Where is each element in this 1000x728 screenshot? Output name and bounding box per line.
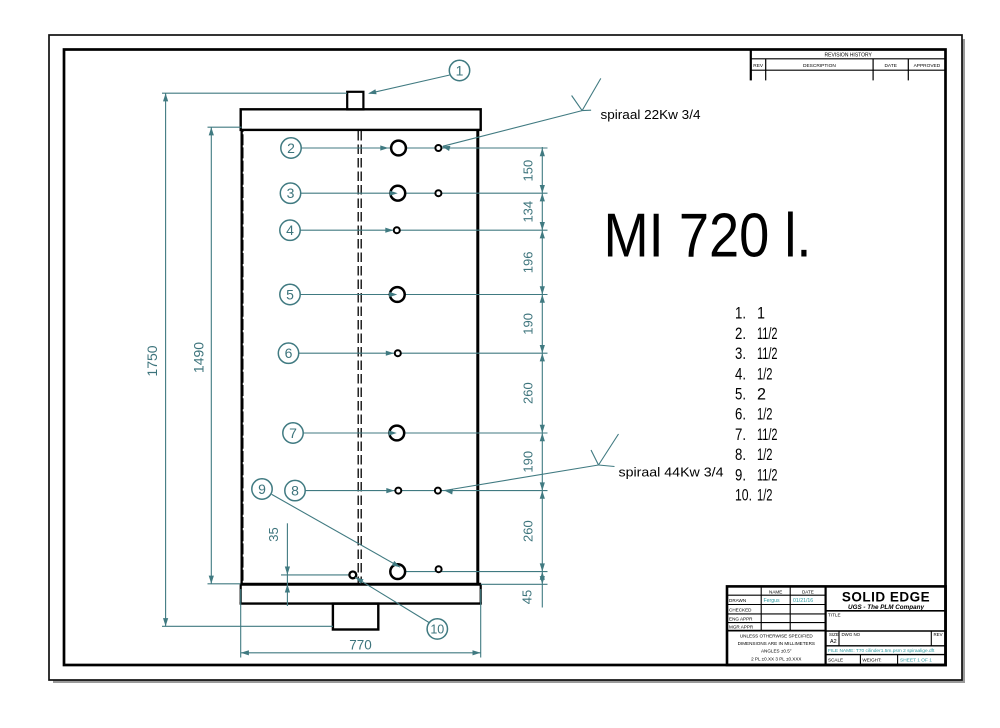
svg-text:196: 196 [521,251,536,273]
svg-text:35: 35 [266,527,281,541]
svg-text:1: 1 [757,304,765,323]
svg-text:01/21/16: 01/21/16 [793,598,813,604]
svg-text:CHECKED: CHECKED [729,608,752,613]
svg-text:1/2: 1/2 [757,486,773,505]
svg-text:FILE NAME: T70 cilinder1.5m.ps: FILE NAME: T70 cilinder1.5m.psm 2 spiraa… [828,648,935,654]
svg-text:SOLID EDGE: SOLID EDGE [842,590,930,605]
svg-text:150: 150 [521,160,536,182]
svg-text:REV: REV [934,632,943,637]
svg-text:1.: 1. [735,304,746,323]
svg-text:4.: 4. [735,364,746,383]
svg-text:ANGLES ±0.5°: ANGLES ±0.5° [761,648,792,653]
svg-text:2.: 2. [735,324,746,343]
svg-text:8.: 8. [735,445,746,464]
svg-text:SIZE: SIZE [829,632,839,637]
svg-text:8: 8 [291,483,299,499]
svg-text:DIMENSIONS ARE IN MILLIMETERS: DIMENSIONS ARE IN MILLIMETERS [738,641,815,646]
svg-text:1/2: 1/2 [757,364,773,383]
svg-text:TITLE: TITLE [828,612,841,617]
svg-text:190: 190 [521,451,536,473]
svg-text:UNLESS OTHERWISE SPECIFIED: UNLESS OTHERWISE SPECIFIED [740,633,814,638]
svg-text:DRAWN: DRAWN [729,598,746,603]
svg-text:11/2: 11/2 [757,324,778,343]
svg-text:6.: 6. [735,405,746,424]
svg-text:REVISION HISTORY: REVISION HISTORY [825,52,873,58]
svg-text:10.: 10. [735,486,752,505]
svg-text:2: 2 [757,385,766,404]
svg-text:SCALE: SCALE [828,657,843,662]
svg-text:5: 5 [286,286,294,302]
svg-text:2 PL ±0.XX 3 PL ±0.XXX: 2 PL ±0.XX 3 PL ±0.XXX [751,656,801,661]
svg-text:1/2: 1/2 [757,445,773,464]
svg-text:134: 134 [521,201,536,223]
svg-text:9: 9 [258,481,266,497]
svg-text:spiraal 44Kw 3/4: spiraal 44Kw 3/4 [619,465,724,480]
svg-text:9.: 9. [735,465,746,484]
svg-text:6: 6 [285,345,293,361]
svg-text:ENG APPR: ENG APPR [729,616,753,621]
svg-text:11/2: 11/2 [757,465,778,484]
svg-text:REV: REV [753,63,764,69]
svg-text:10: 10 [430,622,444,636]
svg-text:MI 720 l.: MI 720 l. [604,202,812,271]
svg-text:5.: 5. [735,385,746,404]
svg-text:3.: 3. [735,344,746,363]
svg-text:DATE: DATE [802,590,814,595]
svg-text:1/2: 1/2 [757,405,773,424]
svg-text:1750: 1750 [144,345,160,376]
svg-text:1: 1 [456,62,464,78]
svg-text:Fergus: Fergus [764,598,781,604]
svg-text:APPROVED: APPROVED [914,63,941,69]
svg-text:2: 2 [287,140,295,156]
svg-text:7.: 7. [735,425,746,444]
svg-text:260: 260 [521,520,536,542]
svg-text:UGS - The PLM Company: UGS - The PLM Company [848,604,924,611]
svg-text:MGR APPR: MGR APPR [729,624,754,629]
svg-text:A2: A2 [830,639,837,645]
svg-text:190: 190 [521,313,536,335]
svg-text:45: 45 [520,590,535,604]
svg-text:DESCRIPTION: DESCRIPTION [803,63,836,69]
svg-text:7: 7 [289,425,297,441]
svg-text:770: 770 [349,638,372,653]
svg-text:1490: 1490 [190,342,206,373]
svg-text:4: 4 [286,222,294,238]
svg-text:260: 260 [521,382,536,404]
svg-text:DATE: DATE [884,63,896,69]
svg-text:11/2: 11/2 [757,425,778,444]
svg-text:spiraal 22Kw 3/4: spiraal 22Kw 3/4 [601,107,701,122]
svg-text:SHEET 1 OF 1: SHEET 1 OF 1 [900,657,932,663]
svg-text:WEIGHT:: WEIGHT: [862,657,881,662]
svg-text:NAME: NAME [769,590,782,595]
svg-text:DWG NO: DWG NO [842,632,861,637]
svg-text:3: 3 [287,185,295,201]
svg-text:11/2: 11/2 [757,344,778,363]
